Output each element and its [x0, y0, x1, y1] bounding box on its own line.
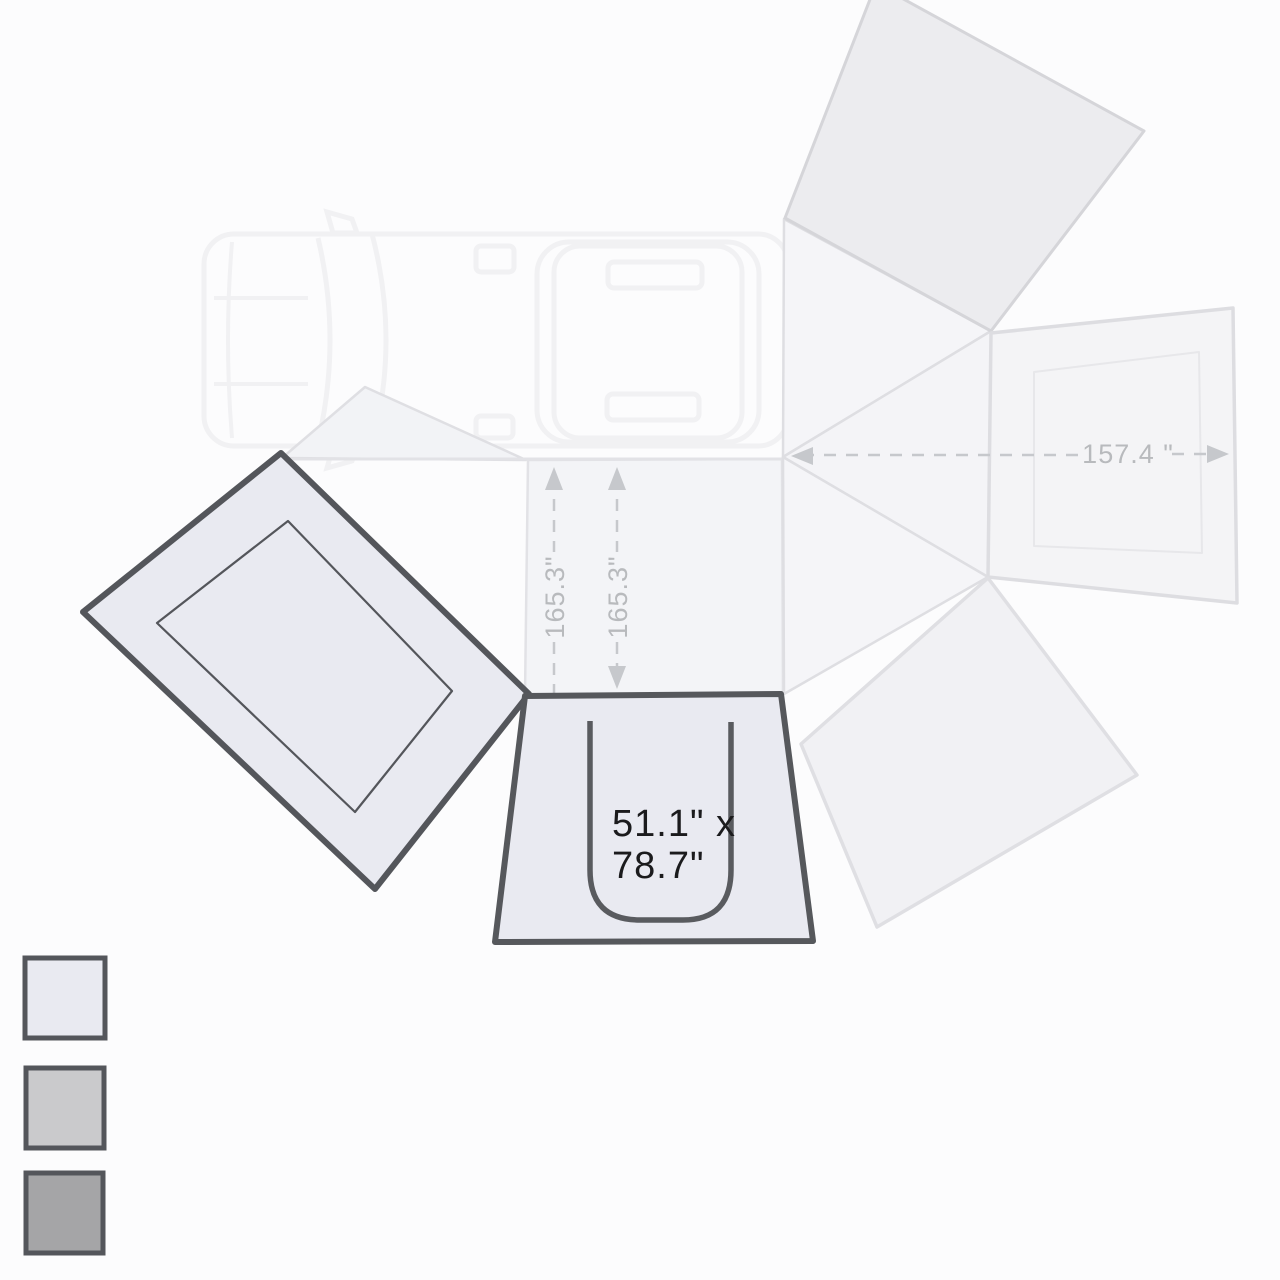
awning-diagram-stage: 165.3" 165.3" 157.4 " 51.1" x 78.7"	[0, 0, 1280, 1280]
legend-swatches	[25, 958, 105, 1253]
legend-swatch-light	[25, 958, 105, 1038]
tent-clamp-bottom	[607, 394, 699, 420]
awning-dimensions-diagram: 165.3" 165.3" 157.4 " 51.1" x 78.7"	[0, 0, 1280, 1280]
right-span-dimension-label: 165.3"	[603, 555, 633, 638]
legend-swatch-dark	[26, 1173, 103, 1253]
panel-size-label-line2: 78.7"	[612, 845, 704, 887]
left-span-dimension-label: 165.3"	[540, 555, 570, 638]
panel-size-label-line1: 51.1" x	[612, 803, 736, 845]
rear-span-dimension-label: 157.4 "	[1082, 439, 1174, 469]
tent-clamp-top	[608, 262, 702, 288]
legend-swatch-medium	[26, 1068, 104, 1148]
